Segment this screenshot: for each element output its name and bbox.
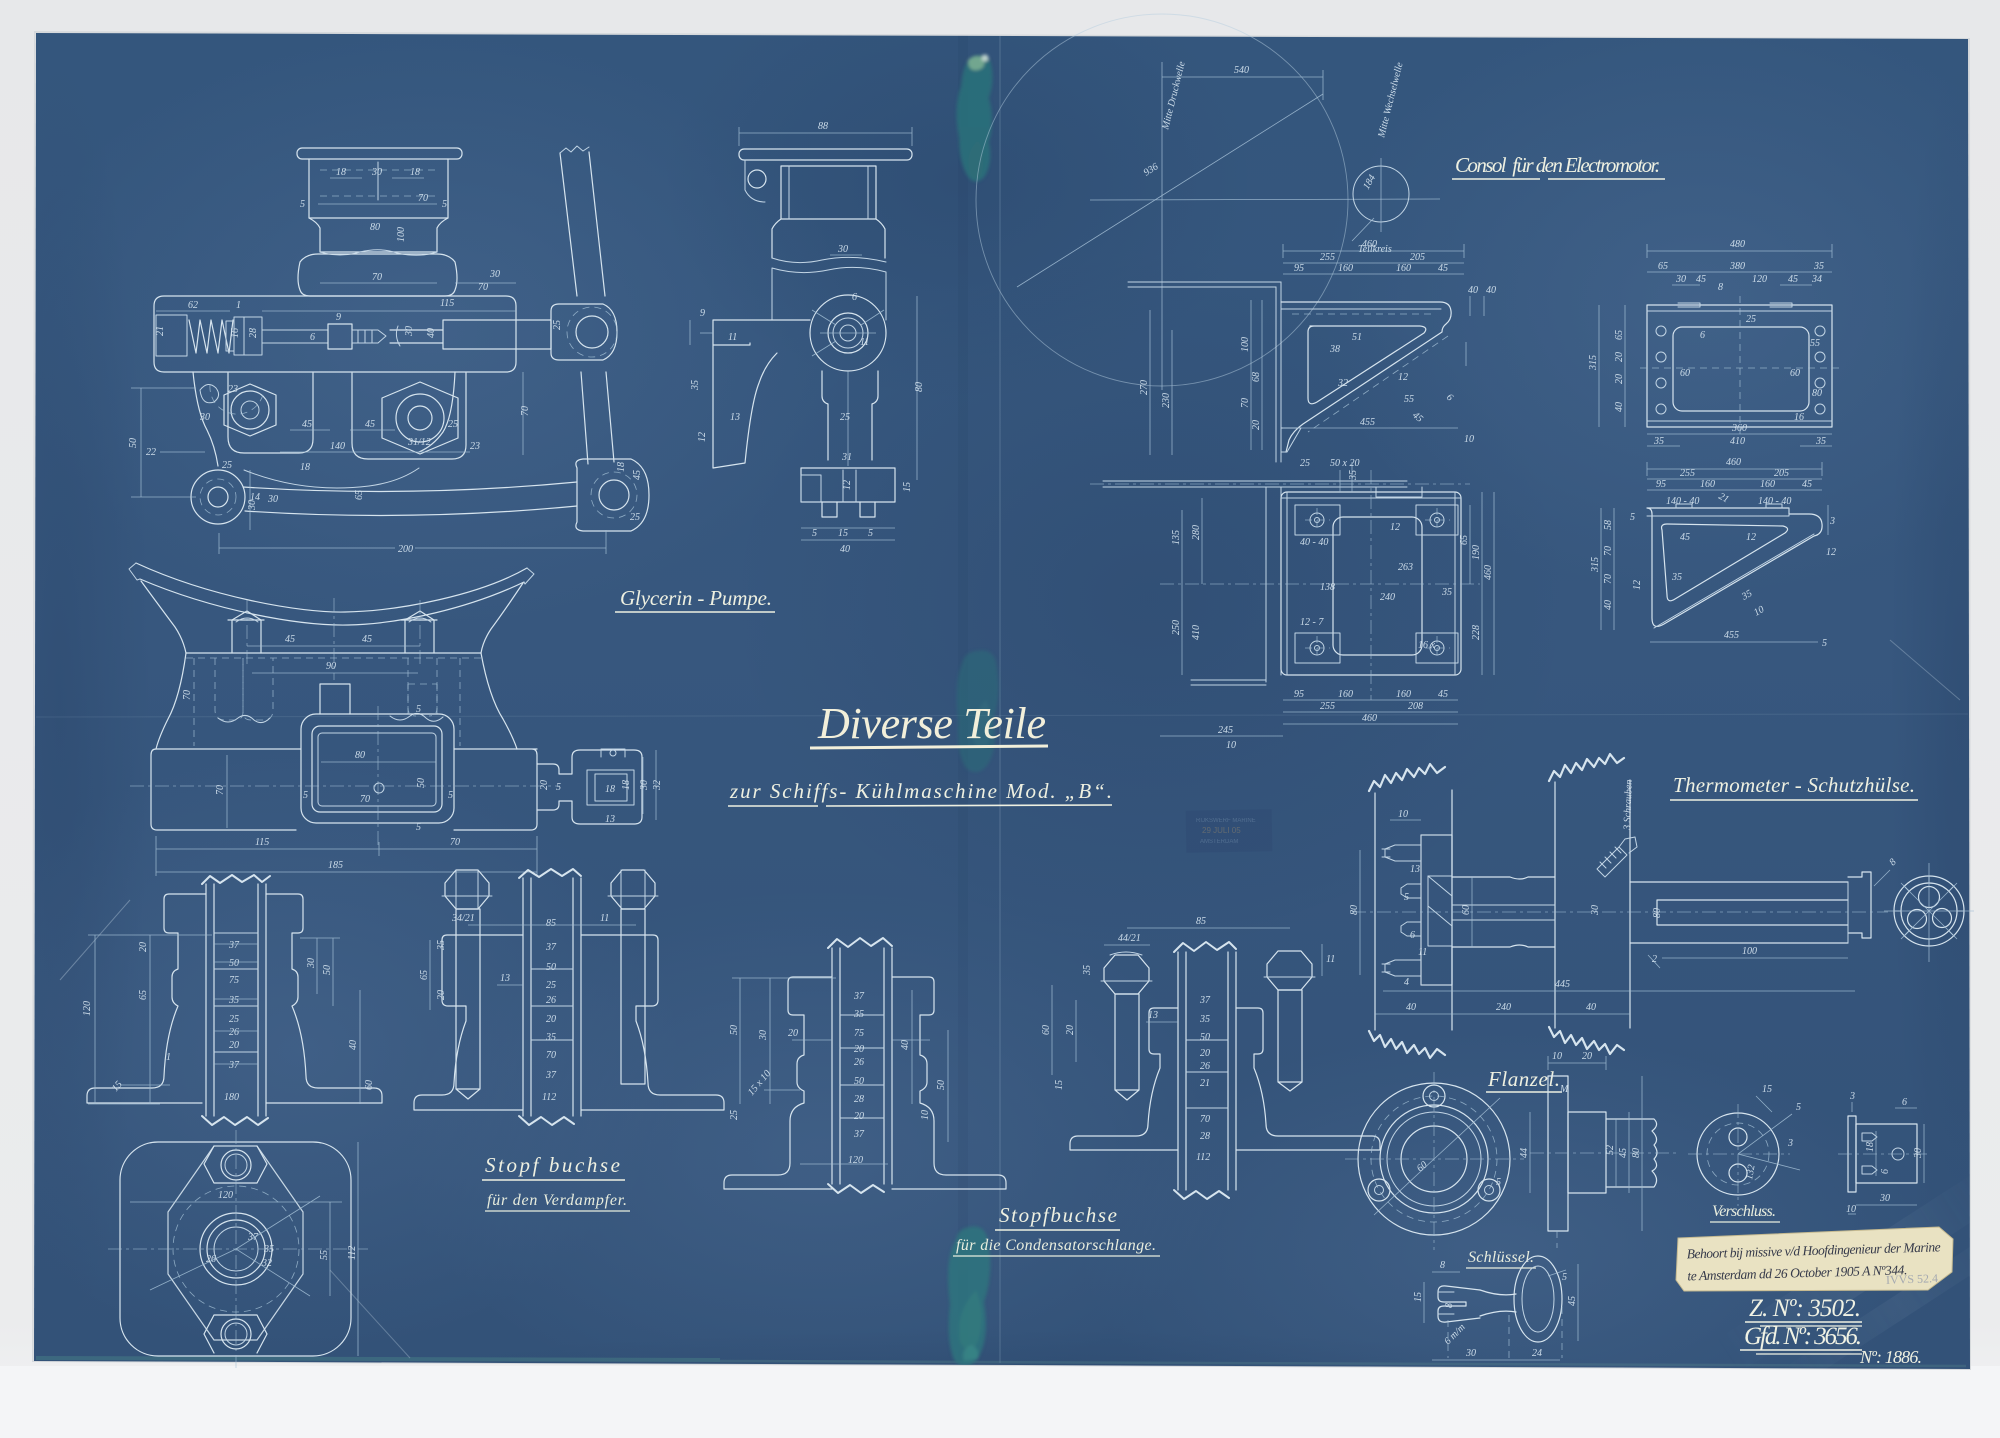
svg-text:13: 13 [730, 412, 740, 423]
svg-text:22: 22 [146, 447, 156, 458]
svg-text:138: 138 [1320, 582, 1335, 593]
svg-text:37: 37 [853, 1129, 865, 1140]
svg-text:30: 30 [199, 412, 210, 423]
svg-text:65: 65 [419, 970, 430, 980]
svg-text:23: 23 [470, 441, 480, 452]
svg-text:37: 37 [853, 991, 865, 1002]
svg-text:80: 80 [1349, 905, 1360, 915]
svg-text:16: 16 [230, 328, 241, 338]
svg-text:45: 45 [1696, 274, 1706, 285]
svg-text:30: 30 [1675, 274, 1686, 285]
svg-text:20: 20 [854, 1044, 864, 1055]
svg-text:6: 6 [310, 332, 315, 343]
svg-text:30: 30 [1879, 1193, 1890, 1204]
svg-text:60: 60 [1790, 368, 1800, 379]
svg-text:30: 30 [1465, 1348, 1476, 1359]
svg-text:460: 460 [1362, 239, 1377, 250]
svg-text:245: 245 [1218, 725, 1233, 736]
svg-text:28: 28 [1200, 1131, 1210, 1142]
svg-text:480: 480 [1730, 239, 1745, 250]
svg-text:62: 62 [188, 300, 198, 311]
svg-text:10: 10 [920, 1110, 931, 1120]
svg-text:30: 30 [306, 958, 317, 969]
svg-text:65: 65 [1614, 330, 1625, 340]
svg-text:35: 35 [853, 1009, 864, 1020]
svg-text:160: 160 [1760, 479, 1775, 490]
svg-text:26: 26 [854, 1057, 864, 1068]
svg-text:8: 8 [1718, 282, 1723, 293]
svg-text:50: 50 [128, 438, 139, 448]
svg-text:35: 35 [1671, 572, 1682, 583]
svg-text:40: 40 [840, 544, 850, 555]
svg-text:Glycerin - Pumpe.: Glycerin - Pumpe. [620, 586, 772, 610]
svg-text:Z. Nº: 3502.: Z. Nº: 3502. [1749, 1295, 1861, 1322]
svg-text:80: 80 [1652, 908, 1663, 918]
svg-text:für den Verdampfer.: für den Verdampfer. [487, 1192, 627, 1209]
svg-text:18: 18 [605, 784, 615, 795]
svg-text:100: 100 [1742, 946, 1757, 957]
svg-text:13: 13 [1410, 864, 1420, 875]
svg-text:51: 51 [1352, 332, 1362, 343]
svg-text:38: 38 [1329, 344, 1340, 355]
svg-text:85: 85 [546, 918, 556, 929]
svg-text:65: 65 [138, 990, 149, 1000]
svg-text:35: 35 [690, 380, 701, 391]
svg-text:180: 180 [224, 1092, 239, 1103]
svg-text:5: 5 [303, 790, 308, 801]
svg-text:35: 35 [1653, 436, 1664, 447]
svg-text:18: 18 [300, 462, 310, 473]
svg-text:5: 5 [1822, 638, 1827, 649]
svg-text:18: 18 [616, 462, 627, 472]
svg-text:10: 10 [1226, 740, 1236, 751]
svg-text:12: 12 [842, 480, 853, 490]
svg-text:50: 50 [416, 778, 427, 788]
svg-text:14: 14 [250, 492, 260, 503]
svg-text:115: 115 [440, 298, 454, 309]
svg-text:44: 44 [1519, 1148, 1530, 1158]
svg-text:29 JULI 05: 29 JULI 05 [1202, 826, 1241, 835]
svg-text:30: 30 [1590, 905, 1601, 916]
svg-text:32: 32 [261, 1258, 272, 1269]
svg-text:455: 455 [1724, 630, 1739, 641]
svg-text:37: 37 [1199, 995, 1211, 1006]
svg-text:30: 30 [267, 494, 278, 505]
svg-text:315: 315 [1590, 557, 1601, 573]
svg-text:80: 80 [1812, 388, 1822, 399]
svg-text:55: 55 [319, 1250, 330, 1260]
svg-text:200: 200 [398, 544, 413, 555]
svg-text:30: 30 [639, 780, 650, 791]
svg-text:140 - 40: 140 - 40 [1758, 496, 1791, 507]
svg-text:45: 45 [302, 419, 312, 430]
svg-text:455: 455 [1360, 417, 1375, 428]
svg-text:35: 35 [228, 995, 239, 1006]
svg-text:20: 20 [1251, 420, 1262, 430]
svg-text:37: 37 [247, 1232, 259, 1243]
svg-text:50 x 20: 50 x 20 [1330, 458, 1359, 469]
svg-text:15: 15 [1413, 1292, 1424, 1302]
svg-text:28: 28 [248, 328, 259, 338]
svg-text:zur Schiffs- Kühlmaschine Mod.: zur Schiffs- Kühlmaschine Mod. „B“. [729, 779, 1112, 803]
svg-text:für die Condensatorschlange.: für die Condensatorschlange. [956, 1237, 1156, 1254]
svg-text:11: 11 [1418, 947, 1427, 958]
svg-text:20: 20 [436, 990, 447, 1000]
svg-text:5: 5 [416, 704, 421, 715]
svg-text:21: 21 [155, 326, 166, 336]
svg-text:50: 50 [546, 962, 556, 973]
svg-text:12: 12 [1632, 580, 1643, 590]
svg-text:60: 60 [1041, 1025, 1052, 1035]
svg-text:13: 13 [1148, 1010, 1158, 1021]
svg-text:10: 10 [1846, 1204, 1856, 1215]
svg-text:18: 18 [621, 780, 632, 790]
svg-text:18: 18 [336, 167, 346, 178]
svg-text:20: 20 [1582, 1051, 1592, 1062]
svg-text:70: 70 [520, 406, 531, 416]
svg-text:5: 5 [1562, 1272, 1567, 1283]
svg-text:8: 8 [1444, 1303, 1455, 1308]
svg-text:3: 3 [1787, 1138, 1793, 1149]
svg-text:90: 90 [326, 661, 336, 672]
svg-text:Flanzel.: Flanzel. [1487, 1067, 1560, 1091]
svg-text:45: 45 [362, 634, 372, 645]
svg-text:112: 112 [347, 1246, 358, 1260]
svg-text:IVVS 52.4: IVVS 52.4 [1886, 1271, 1938, 1287]
svg-text:15: 15 [1054, 1080, 1065, 1090]
svg-text:135: 135 [1171, 530, 1182, 545]
svg-text:70: 70 [215, 785, 226, 795]
svg-text:50: 50 [1200, 1032, 1210, 1043]
svg-text:30: 30 [1913, 1148, 1924, 1159]
svg-text:70: 70 [182, 690, 193, 700]
svg-text:205: 205 [1410, 252, 1425, 263]
svg-text:12: 12 [1746, 532, 1756, 543]
svg-text:32: 32 [652, 780, 663, 791]
svg-text:263: 263 [1398, 562, 1413, 573]
svg-text:Stopfbuchse: Stopfbuchse [999, 1203, 1117, 1227]
svg-text:70: 70 [418, 193, 428, 204]
svg-text:Gfd. Nº: 3656.: Gfd. Nº: 3656. [1744, 1323, 1862, 1350]
svg-text:10: 10 [1398, 809, 1408, 820]
svg-text:12: 12 [697, 432, 708, 442]
svg-text:32: 32 [1337, 378, 1348, 389]
svg-text:208: 208 [1408, 701, 1423, 712]
svg-text:10: 10 [1464, 434, 1474, 445]
svg-text:45: 45 [1438, 689, 1448, 700]
svg-text:112: 112 [542, 1092, 556, 1103]
svg-text:55: 55 [1810, 338, 1820, 349]
svg-text:40: 40 [1614, 402, 1625, 412]
svg-text:205: 205 [1774, 468, 1789, 479]
svg-text:40: 40 [348, 1040, 359, 1050]
svg-text:40: 40 [900, 1040, 911, 1050]
svg-text:120: 120 [218, 1190, 233, 1201]
svg-text:20: 20 [1614, 374, 1625, 384]
svg-text:15: 15 [1762, 1084, 1772, 1095]
svg-text:30: 30 [758, 1030, 769, 1041]
svg-text:12: 12 [1390, 522, 1400, 533]
svg-text:5: 5 [300, 199, 305, 210]
svg-text:M: M [1559, 1084, 1569, 1095]
svg-text:80: 80 [355, 750, 365, 761]
svg-text:45: 45 [1567, 1296, 1578, 1306]
svg-text:26: 26 [206, 1254, 216, 1265]
svg-text:20: 20 [1065, 1025, 1076, 1035]
svg-text:20: 20 [539, 780, 550, 790]
svg-text:37: 37 [545, 1070, 557, 1081]
svg-text:34: 34 [1811, 274, 1822, 285]
svg-text:315: 315 [1588, 355, 1599, 371]
svg-text:13: 13 [500, 973, 510, 984]
svg-text:65: 65 [1459, 535, 1470, 545]
svg-text:40: 40 [1468, 285, 1478, 296]
svg-text:460: 460 [1726, 457, 1741, 468]
svg-text:28: 28 [854, 1094, 864, 1105]
svg-text:40 - 40: 40 - 40 [1300, 537, 1328, 548]
svg-text:255: 255 [1320, 701, 1335, 712]
svg-text:5: 5 [1630, 512, 1635, 523]
svg-text:35: 35 [1813, 261, 1824, 272]
svg-text:190: 190 [1471, 545, 1482, 560]
svg-text:50: 50 [854, 1076, 864, 1087]
svg-text:37: 37 [228, 940, 240, 951]
svg-text:85: 85 [1196, 916, 1206, 927]
svg-text:75: 75 [854, 1028, 864, 1039]
svg-text:20: 20 [229, 1040, 239, 1051]
svg-text:21: 21 [1200, 1078, 1210, 1089]
svg-text:25: 25 [546, 980, 556, 991]
svg-text:1: 1 [236, 300, 241, 311]
svg-text:50: 50 [729, 1025, 740, 1035]
svg-text:45: 45 [1680, 532, 1690, 543]
svg-text:16: 16 [1794, 412, 1804, 423]
svg-text:95: 95 [1294, 689, 1304, 700]
svg-text:35: 35 [1082, 965, 1093, 976]
svg-text:35: 35 [1199, 1014, 1210, 1025]
svg-text:2: 2 [1652, 954, 1657, 965]
svg-text:5: 5 [1404, 892, 1409, 903]
svg-text:30: 30 [404, 326, 415, 337]
svg-text:15: 15 [902, 482, 913, 492]
svg-text:25: 25 [448, 419, 458, 430]
svg-text:50: 50 [229, 958, 239, 969]
svg-text:9: 9 [700, 308, 705, 319]
svg-text:11: 11 [600, 913, 609, 924]
svg-text:5: 5 [448, 790, 453, 801]
svg-text:8: 8 [1440, 1260, 1445, 1271]
svg-text:60: 60 [1680, 368, 1690, 379]
svg-text:460: 460 [1483, 565, 1494, 580]
svg-text:160: 160 [1338, 263, 1353, 274]
svg-text:240: 240 [1380, 592, 1395, 603]
svg-text:70: 70 [1603, 574, 1614, 584]
svg-text:3 Schrauben: 3 Schrauben [1622, 779, 1635, 831]
svg-text:3: 3 [1849, 1091, 1855, 1102]
svg-text:45: 45 [1618, 1148, 1629, 1158]
svg-text:20: 20 [1200, 1048, 1210, 1059]
svg-text:30: 30 [371, 167, 382, 178]
svg-text:140: 140 [330, 441, 345, 452]
svg-text:68: 68 [1251, 372, 1262, 382]
svg-text:280: 280 [1191, 525, 1202, 540]
svg-text:95: 95 [1294, 263, 1304, 274]
svg-text:45: 45 [365, 419, 375, 430]
svg-text:30: 30 [837, 244, 848, 255]
svg-text:70: 70 [546, 1050, 556, 1061]
svg-text:70: 70 [1200, 1114, 1210, 1125]
svg-text:250: 250 [1171, 620, 1182, 635]
svg-text:120: 120 [82, 1001, 93, 1016]
svg-text:45: 45 [285, 634, 295, 645]
svg-text:100: 100 [396, 227, 407, 242]
svg-text:25: 25 [1300, 458, 1310, 469]
svg-text:9: 9 [336, 312, 341, 323]
svg-text:160: 160 [1396, 263, 1411, 274]
svg-text:20: 20 [854, 1111, 864, 1122]
svg-text:40: 40 [1406, 1002, 1416, 1013]
svg-text:55: 55 [1404, 394, 1414, 405]
svg-text:1: 1 [166, 1052, 171, 1063]
svg-text:Thermometer - Schutzhülse.: Thermometer - Schutzhülse. [1673, 773, 1915, 797]
svg-text:5: 5 [812, 528, 817, 539]
svg-text:Diverse Teile: Diverse Teile [817, 699, 1046, 748]
svg-text:65: 65 [1658, 261, 1668, 272]
svg-text:5: 5 [442, 199, 447, 210]
svg-text:70: 70 [372, 272, 382, 283]
svg-text:12: 12 [1398, 372, 1408, 383]
svg-text:115: 115 [255, 837, 269, 848]
svg-text:410: 410 [1191, 625, 1202, 640]
svg-text:360: 360 [1731, 423, 1747, 434]
svg-text:26: 26 [229, 1027, 239, 1038]
svg-text:160: 160 [1700, 479, 1715, 490]
svg-text:AMSTERDAM: AMSTERDAM [1200, 839, 1238, 845]
svg-text:5: 5 [1796, 1102, 1801, 1113]
svg-text:40: 40 [426, 328, 437, 338]
svg-text:540: 540 [1234, 65, 1249, 76]
svg-text:95: 95 [1656, 479, 1666, 490]
svg-text:24: 24 [1532, 1348, 1542, 1359]
svg-text:11: 11 [728, 332, 737, 343]
svg-text:45: 45 [1438, 263, 1448, 274]
svg-text:58: 58 [1603, 520, 1614, 530]
svg-text:12: 12 [1826, 547, 1836, 558]
svg-text:50: 50 [322, 965, 333, 975]
svg-text:34/21: 34/21 [451, 913, 475, 924]
svg-text:80: 80 [370, 222, 380, 233]
svg-text:RIJKSWERF MARINE: RIJKSWERF MARINE [1196, 818, 1256, 824]
svg-text:25: 25 [222, 460, 232, 471]
svg-text:20: 20 [788, 1028, 798, 1039]
svg-text:Consol für den Electromotor.: Consol für den Electromotor. [1455, 153, 1660, 177]
svg-text:25: 25 [229, 1014, 239, 1025]
svg-text:70: 70 [360, 794, 370, 805]
svg-text:88: 88 [818, 121, 828, 132]
svg-text:6: 6 [1880, 1169, 1891, 1174]
svg-text:6: 6 [1700, 330, 1705, 341]
svg-text:20: 20 [546, 1014, 556, 1025]
svg-text:270: 270 [1139, 380, 1150, 395]
svg-text:13: 13 [605, 814, 615, 825]
svg-text:11: 11 [860, 337, 869, 348]
svg-text:44/21: 44/21 [1118, 933, 1141, 944]
svg-text:112: 112 [1196, 1152, 1210, 1163]
svg-text:26: 26 [1200, 1061, 1210, 1072]
svg-text:35: 35 [545, 1032, 556, 1043]
svg-text:100: 100 [1240, 337, 1251, 352]
svg-text:5: 5 [868, 528, 873, 539]
svg-text:12 - 7: 12 - 7 [1300, 617, 1324, 628]
svg-text:40: 40 [1586, 1002, 1596, 1013]
svg-text:35: 35 [1348, 470, 1359, 481]
svg-text:25: 25 [552, 320, 563, 330]
svg-text:10: 10 [1552, 1051, 1562, 1062]
svg-text:6: 6 [1410, 930, 1415, 941]
svg-text:75: 75 [229, 975, 239, 986]
svg-text:50: 50 [936, 1080, 947, 1090]
svg-text:70: 70 [478, 282, 488, 293]
svg-text:60: 60 [364, 1080, 375, 1090]
svg-text:23: 23 [228, 384, 238, 395]
svg-text:18: 18 [410, 167, 420, 178]
svg-text:80: 80 [1631, 1148, 1642, 1158]
svg-text:120: 120 [1752, 274, 1767, 285]
svg-text:25: 25 [1746, 314, 1756, 325]
svg-text:380: 380 [1729, 261, 1745, 272]
svg-text:31/12: 31/12 [407, 437, 431, 448]
svg-text:35: 35 [436, 940, 447, 951]
svg-text:140 - 40: 140 - 40 [1666, 496, 1699, 507]
svg-text:230: 230 [1161, 393, 1172, 408]
svg-text:160: 160 [1396, 689, 1411, 700]
svg-text:70: 70 [1603, 546, 1614, 556]
svg-text:11: 11 [1326, 954, 1335, 965]
svg-text:45: 45 [632, 470, 643, 480]
svg-text:35: 35 [1815, 436, 1826, 447]
svg-text:255: 255 [1680, 468, 1695, 479]
svg-text:Nº: 1886.: Nº: 1886. [1859, 1347, 1922, 1367]
svg-text:26: 26 [546, 995, 556, 1006]
svg-text:30: 30 [489, 269, 500, 280]
svg-text:45: 45 [1788, 274, 1798, 285]
svg-text:60: 60 [1461, 905, 1472, 915]
svg-text:40: 40 [1603, 600, 1614, 610]
svg-text:5: 5 [416, 822, 421, 833]
svg-text:40: 40 [1486, 285, 1496, 296]
svg-text:65: 65 [354, 490, 365, 500]
svg-text:31: 31 [841, 452, 852, 463]
svg-text:35: 35 [263, 1244, 274, 1255]
svg-text:25: 25 [630, 512, 640, 523]
svg-text:185: 185 [328, 860, 343, 871]
svg-text:6: 6 [852, 292, 857, 303]
svg-text:5: 5 [556, 782, 561, 793]
svg-text:160: 160 [1338, 689, 1353, 700]
svg-text:228: 228 [1471, 625, 1482, 640]
svg-text:80: 80 [914, 382, 925, 392]
svg-text:20: 20 [138, 942, 149, 952]
svg-text:25: 25 [729, 1110, 740, 1120]
svg-text:240: 240 [1496, 1002, 1511, 1013]
svg-text:70: 70 [450, 837, 460, 848]
svg-text:445: 445 [1555, 979, 1570, 990]
svg-text:20: 20 [1614, 352, 1625, 362]
svg-text:15: 15 [838, 528, 848, 539]
svg-text:255: 255 [1320, 252, 1335, 263]
svg-text:35: 35 [1441, 587, 1452, 598]
svg-text:18: 18 [1865, 1142, 1876, 1152]
